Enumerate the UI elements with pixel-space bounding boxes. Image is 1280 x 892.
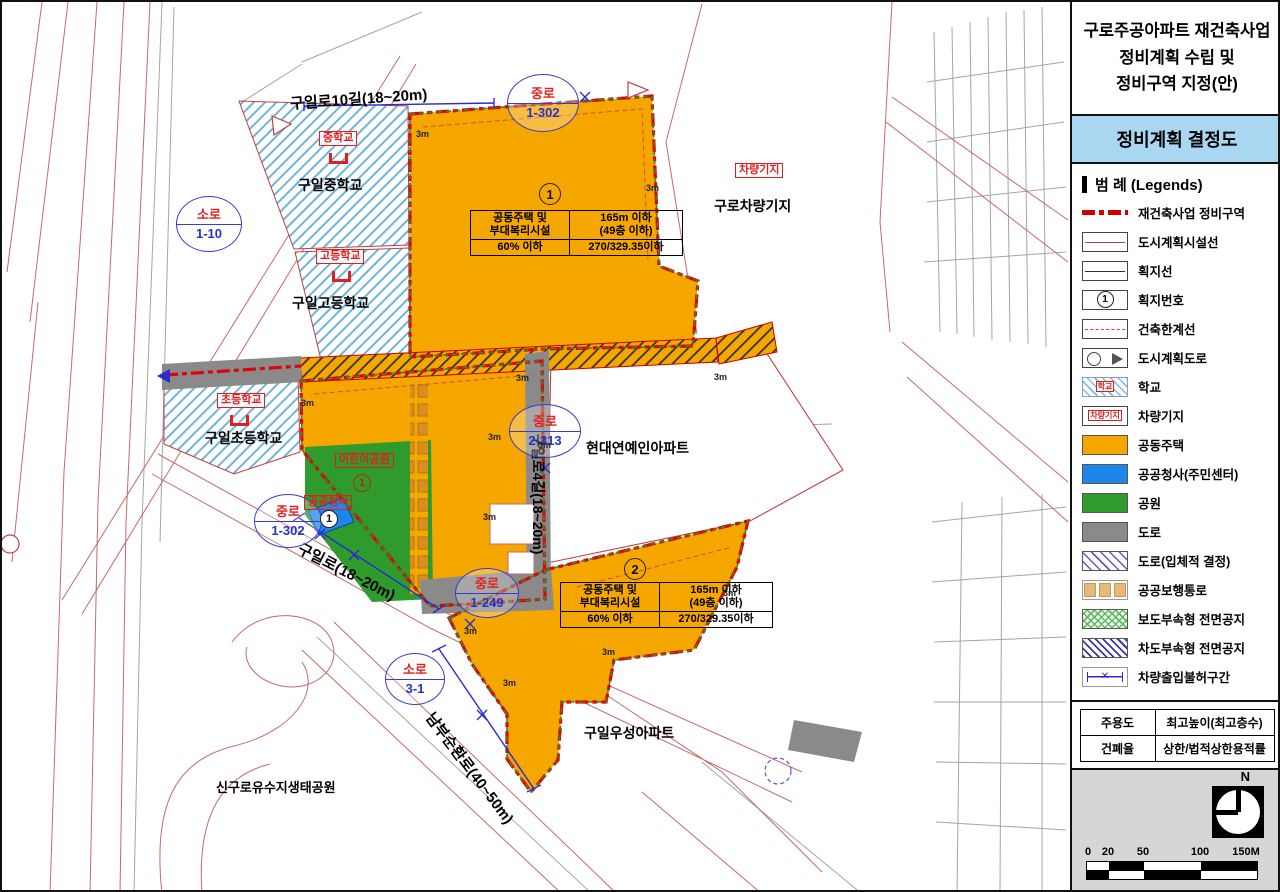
- planning-map-sheet: 구일로10길(18~20m) 구일로(18~20m) 구일로4길(18~20m)…: [0, 0, 1280, 892]
- legend-label: 획지번호: [1138, 290, 1184, 309]
- legend-header: 범 례 (Legends): [1082, 170, 1280, 198]
- roadway-frontage-swatch: [1082, 638, 1128, 658]
- legend-item-park: 공원: [1082, 488, 1280, 517]
- parcel-use-cell: 공동주택 및부대복리시설: [561, 583, 660, 612]
- legend-item-no-vehicle-access: ✕ 차량출입불허구간: [1082, 662, 1280, 691]
- school-mini-label: 학교: [1096, 381, 1115, 393]
- road-circle-soro-3-1: 소로 3-1: [385, 653, 445, 705]
- planned-road-swatch: [1082, 348, 1128, 368]
- legend-label: 학교: [1138, 377, 1161, 396]
- parcel-1-regulation-table: 공동주택 및부대복리시설 165m 이하(49층 이하) 60% 이하 270/…: [470, 210, 683, 256]
- title-line: 구로주공아파트 재건축사업: [1084, 18, 1271, 44]
- road-circle-jungro-1-249: 중로 1-249: [455, 568, 519, 618]
- scale-tick-label: 20: [1102, 846, 1114, 858]
- public-office-number: 1: [320, 510, 338, 528]
- legend-label: 차량기지: [1138, 406, 1184, 425]
- setback-label: 3m: [714, 372, 727, 382]
- school-icon: [230, 415, 249, 426]
- facility-line-swatch: [1082, 232, 1128, 252]
- north-label: N: [1241, 769, 1250, 784]
- legend-item-public-office: 공공청사(주민센터): [1082, 459, 1280, 488]
- legend-item-school: 학교 학교: [1082, 372, 1280, 401]
- scale-tick-label: 0: [1085, 846, 1091, 858]
- place-label-elementary-school: 구일초등학교: [205, 428, 282, 448]
- setback-label: 3m: [301, 398, 314, 408]
- use-table-cell: 주용도: [1080, 709, 1155, 735]
- place-label-high-school: 구일고등학교: [292, 293, 369, 313]
- legend-bar-icon: [1082, 176, 1087, 193]
- circled-number-icon: 1: [1097, 291, 1114, 308]
- road-circle-type: 중로: [510, 405, 580, 432]
- legend-item-housing: 공동주택: [1082, 430, 1280, 459]
- parcel-line-swatch: [1082, 261, 1128, 281]
- place-label-woosung-apt: 구일우성아파트: [584, 723, 674, 743]
- legend-label: 차량출입불허구간: [1138, 667, 1230, 686]
- legend-label: 획지선: [1138, 261, 1173, 280]
- sheet-subtitle: 정비계획 결정도: [1072, 116, 1280, 164]
- legend-label: 도시계획도로: [1138, 348, 1207, 367]
- legend-item-facility-line: 도시계획시설선: [1082, 227, 1280, 256]
- road-circle-type: 중로: [456, 569, 518, 594]
- legend-label: 보도부속형 전면공지: [1138, 609, 1245, 628]
- legend-label: 공공보행통로: [1138, 580, 1207, 599]
- sidewalk-frontage-swatch: [1082, 609, 1128, 629]
- school-icon: [332, 271, 351, 282]
- road-swatch: [1082, 522, 1128, 542]
- legend-label: 공동주택: [1138, 435, 1184, 454]
- road-circle-type: 중로: [508, 75, 578, 104]
- setback-label: 3m: [646, 183, 659, 193]
- title-line: 정비구역 지정(안): [1116, 71, 1238, 97]
- housing-swatch: [1082, 435, 1128, 455]
- legend-item-road-3d: 도로(입체적 결정): [1082, 546, 1280, 575]
- no-vehicle-access-swatch: ✕: [1082, 667, 1128, 687]
- park-number: 1: [353, 474, 371, 492]
- sidebar: 구로주공아파트 재건축사업 정비계획 수립 및 정비구역 지정(안) 정비계획 …: [1070, 2, 1280, 892]
- road-circle-number: 1-302: [508, 104, 578, 132]
- depot-mini-label: 차량기지: [1088, 410, 1121, 422]
- setback-label: 3m: [602, 647, 615, 657]
- legend-label: 차도부속형 전면공지: [1138, 638, 1245, 657]
- legend-item-depot: 차량기지 차량기지: [1082, 401, 1280, 430]
- legend-label: 도로(입체적 결정): [1138, 551, 1230, 570]
- facility-label-public-office: 공공청사: [304, 495, 352, 510]
- legend-panel: 범 례 (Legends) 재건축사업 정비구역 도시계획시설선 획지선 1 획…: [1072, 164, 1280, 702]
- no-entry-x-icon: ✕: [1101, 672, 1109, 682]
- depot-swatch: 차량기지: [1082, 406, 1128, 426]
- legend-item-parcel-line: 획지선: [1082, 256, 1280, 285]
- school-swatch: 학교: [1082, 377, 1128, 397]
- legend-item-building-limit: 건축한계선: [1082, 314, 1280, 343]
- parcel-far-cell: 270/329.35이하: [660, 611, 773, 627]
- place-label-depot: 구로차량기지: [714, 196, 791, 216]
- public-office-swatch: [1082, 464, 1128, 484]
- map-furniture-panel: N 0 20 50 100 150M: [1072, 770, 1280, 892]
- legend-header-text: 범 례 (Legends): [1095, 174, 1203, 195]
- facility-label-high-school: 고등학교: [316, 249, 364, 264]
- setback-label: 3m: [483, 512, 496, 522]
- use-table-panel: 주용도 최고높이(최고층수) 건폐율 상한/법적상한용적률: [1072, 702, 1280, 770]
- legend-item-sidewalk-frontage: 보도부속형 전면공지: [1082, 604, 1280, 633]
- title-line: 정비계획 수립 및: [1119, 45, 1234, 71]
- school-icon: [329, 153, 348, 164]
- road-circle-number: 3-1: [386, 680, 444, 705]
- facility-label-depot: 차량기지: [735, 163, 783, 178]
- facility-label-elementary-school: 초등학교: [217, 393, 265, 408]
- setback-label: 3m: [503, 678, 516, 688]
- map-area: 구일로10길(18~20m) 구일로(18~20m) 구일로4길(18~20m)…: [2, 2, 1070, 892]
- parcel-coverage-cell: 60% 이하: [561, 611, 660, 627]
- legend-item-road: 도로: [1082, 517, 1280, 546]
- scale-tick-label: 150M: [1232, 846, 1260, 858]
- pedestrian-passage-band: [410, 380, 428, 594]
- facility-label-middle-school: 중학교: [319, 131, 357, 146]
- scale-labels: 0 20 50 100 150M: [1086, 846, 1258, 861]
- parcel-height-cell: 165m 이하(49층 이하): [570, 211, 683, 240]
- road-circle-soro-1-10: 소로 1-10: [176, 196, 242, 252]
- building-limit-swatch: [1082, 319, 1128, 339]
- scale-bar-row: [1086, 861, 1258, 871]
- road-3d-swatch: [1082, 551, 1128, 571]
- setback-label: 3m: [416, 129, 429, 139]
- road-circle-number: 1-302: [255, 522, 321, 548]
- boundary-line-swatch: [1082, 210, 1128, 215]
- parcel-number-2: 2: [624, 558, 646, 580]
- facility-label-childrens-park: 어린이공원: [335, 453, 394, 468]
- pedestrian-path-swatch: [1082, 580, 1128, 600]
- scale-tick-label: 100: [1191, 846, 1209, 858]
- parcel-coverage-cell: 60% 이하: [471, 239, 570, 255]
- setback-label: 3m: [516, 373, 529, 383]
- place-label-middle-school: 구일중학교: [298, 175, 362, 195]
- legend-item-roadway-frontage: 차도부속형 전면공지: [1082, 633, 1280, 662]
- road-circle-number: 1-10: [177, 225, 241, 252]
- parcel-far-cell: 270/329.35이하: [570, 239, 683, 255]
- road-circle-type: 소로: [177, 197, 241, 225]
- legend-label: 건축한계선: [1138, 319, 1196, 338]
- legend-label: 도시계획시설선: [1138, 232, 1219, 251]
- legend-label: 도로: [1138, 522, 1161, 541]
- road-circle-type: 소로: [386, 654, 444, 680]
- north-compass-icon: [1212, 786, 1264, 838]
- sheet-title: 구로주공아파트 재건축사업 정비계획 수립 및 정비구역 지정(안): [1072, 2, 1280, 116]
- parcel-height-cell: 165m 이하(49층 이하): [660, 583, 773, 612]
- scale-tick-label: 50: [1137, 846, 1149, 858]
- place-label-hyundai-apt: 현대연예인아파트: [586, 438, 689, 458]
- legend-label: 공원: [1138, 493, 1161, 512]
- place-label-eco-park: 신구로유수지생태공원: [216, 777, 336, 796]
- setback-label: 3m: [723, 588, 736, 598]
- use-table-cell: 최고높이(최고층수): [1155, 709, 1274, 735]
- scale-bar-row: [1086, 871, 1258, 880]
- park-swatch: [1082, 493, 1128, 513]
- use-table: 주용도 최고높이(최고층수) 건폐율 상한/법적상한용적률: [1080, 709, 1275, 762]
- parcel-use-cell: 공동주택 및부대복리시설: [471, 211, 570, 240]
- setback-label: 3m: [538, 440, 551, 450]
- legend-item-planned-road: 도시계획도로: [1082, 343, 1280, 372]
- legend-label: 공공청사(주민센터): [1138, 464, 1238, 483]
- legend-item-pedestrian-path: 공공보행통로: [1082, 575, 1280, 604]
- road-circle-number: 1-249: [456, 594, 518, 618]
- legend-item-boundary: 재건축사업 정비구역: [1082, 198, 1280, 227]
- scale-bar: 0 20 50 100 150M: [1086, 846, 1258, 880]
- parcel-number-1: 1: [539, 183, 561, 205]
- legend-label: 재건축사업 정비구역: [1138, 203, 1245, 222]
- use-table-cell: 상한/법적상한용적률: [1155, 735, 1274, 761]
- setback-label: 3m: [488, 432, 501, 442]
- legend-item-parcel-number: 1 획지번호: [1082, 285, 1280, 314]
- setback-label: 3m: [464, 626, 477, 636]
- use-table-cell: 건폐율: [1080, 735, 1155, 761]
- parcel-2-regulation-table: 공동주택 및부대복리시설 165m 이하(49층 이하) 60% 이하 270/…: [560, 582, 773, 628]
- road-circle-jungro-1-302-top: 중로 1-302: [507, 74, 579, 132]
- parcel-number-swatch: 1: [1082, 290, 1128, 310]
